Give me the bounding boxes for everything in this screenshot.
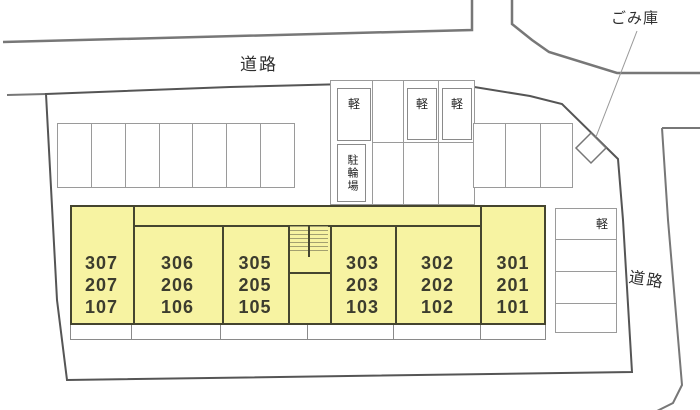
kei-car-stall: 軽 <box>337 88 371 141</box>
parking-column-right: 軽 <box>555 208 617 333</box>
room-number: 107 <box>70 296 133 318</box>
room-number: 101 <box>480 296 546 318</box>
kei-car-stall: 軽 <box>442 88 472 140</box>
room-number: 303 <box>330 252 395 274</box>
unit-306: 306 206 106 <box>133 252 222 318</box>
room-number: 106 <box>133 296 222 318</box>
parking-divider <box>540 123 541 188</box>
unit-301: 301 201 101 <box>480 252 546 318</box>
parking-stall <box>261 124 294 187</box>
room-number: 305 <box>222 252 288 274</box>
garbage-leader-line <box>594 31 637 142</box>
parking-divider <box>556 303 616 304</box>
room-number: 206 <box>133 274 222 296</box>
staircase-landing-wall <box>288 272 330 274</box>
parking-stall <box>160 124 194 187</box>
road-branch-edge <box>512 0 700 73</box>
parking-stall <box>58 124 92 187</box>
entry-strip-divider <box>220 325 221 340</box>
building-entry-strip <box>70 325 546 340</box>
room-number: 202 <box>395 274 480 296</box>
room-number: 207 <box>70 274 133 296</box>
garbage-store-label: ごみ庫 <box>611 7 659 28</box>
parking-group-right <box>473 123 573 188</box>
entry-strip-divider <box>393 325 394 340</box>
kei-car-label: 軽 <box>416 97 428 111</box>
room-number: 307 <box>70 252 133 274</box>
kei-car-stall: 軽 <box>407 88 437 140</box>
entry-strip-divider <box>307 325 308 340</box>
site-plan: 道路 道路 ごみ庫 軽 軽 軽 駐輪場 軽 <box>0 0 700 410</box>
kei-car-label: 軽 <box>596 215 608 232</box>
kei-car-label: 軽 <box>348 97 360 111</box>
road-top-upper-edge <box>3 0 472 42</box>
room-number: 105 <box>222 296 288 318</box>
road-top-lower-edge-stub <box>7 94 46 95</box>
parking-divider <box>505 123 506 188</box>
parking-stall <box>193 124 227 187</box>
parking-row-left <box>57 123 295 188</box>
parking-stall <box>92 124 126 187</box>
unit-303: 303 203 103 <box>330 252 395 318</box>
room-number: 302 <box>395 252 480 274</box>
room-number: 306 <box>133 252 222 274</box>
entry-strip-divider <box>480 325 481 340</box>
parking-divider <box>556 239 616 240</box>
unit-307: 307 207 107 <box>70 252 133 318</box>
parking-divider <box>556 271 616 272</box>
room-number: 301 <box>480 252 546 274</box>
parking-divider <box>372 142 475 143</box>
room-number: 102 <box>395 296 480 318</box>
staircase-rail <box>308 226 310 257</box>
unit-305: 305 205 105 <box>222 252 288 318</box>
room-number: 203 <box>330 274 395 296</box>
bicycle-parking-label: 駐輪場 <box>346 154 357 193</box>
kei-car-label: 軽 <box>451 97 463 111</box>
parking-stall <box>227 124 261 187</box>
garbage-store-shape <box>576 133 606 163</box>
parking-stall <box>126 124 160 187</box>
bicycle-parking-area: 駐輪場 <box>337 144 366 202</box>
road-top-label: 道路 <box>240 50 278 75</box>
room-number: 205 <box>222 274 288 296</box>
unit-302: 302 202 102 <box>395 252 480 318</box>
room-number: 201 <box>480 274 546 296</box>
entry-strip-divider <box>131 325 132 340</box>
room-number: 103 <box>330 296 395 318</box>
